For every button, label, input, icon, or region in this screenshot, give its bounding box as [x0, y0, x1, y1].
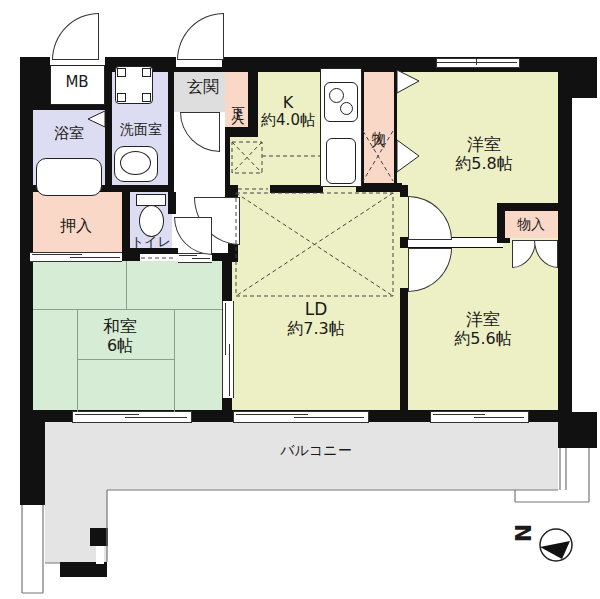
kitchen-label: K 約4.0帖: [261, 94, 315, 130]
floor-plan: MB 浴室 洗面室 玄関 下足入 K 約4.0帖 物入 洋室 約5.8帖 押入 …: [0, 0, 600, 599]
entrance-label: 玄関: [187, 78, 219, 96]
bathroom-label: 浴室: [54, 125, 84, 142]
shoe-storage-label: 下足入: [230, 97, 245, 103]
mb-label: MB: [65, 74, 88, 91]
balcony-railing-lines: [22, 448, 589, 593]
folding-door-triangle-icon: [397, 70, 419, 93]
oshiire-label: 押入: [60, 217, 92, 235]
western-room-2-label: 洋室 約5.6帖: [454, 310, 511, 348]
bath-door-triangle-icon: [88, 111, 105, 127]
storage-top-dashed: [363, 131, 393, 181]
balcony-label: バルコニー: [280, 442, 351, 458]
compass-icon: [540, 529, 572, 561]
storage-right-label: 物入: [517, 216, 545, 232]
living-dining-label: LD 約7.3帖: [287, 300, 344, 338]
compass-north-label: N: [509, 524, 534, 542]
toilet-label: トイレ: [131, 235, 171, 250]
folding-door-triangle-icon: [397, 140, 419, 172]
japanese-room-label: 和室 6帖: [103, 317, 137, 355]
storage-top-label: 物入: [371, 120, 387, 124]
washroom-label: 洗面室: [120, 121, 162, 137]
western-room-1-label: 洋室 約5.8帖: [455, 135, 512, 173]
